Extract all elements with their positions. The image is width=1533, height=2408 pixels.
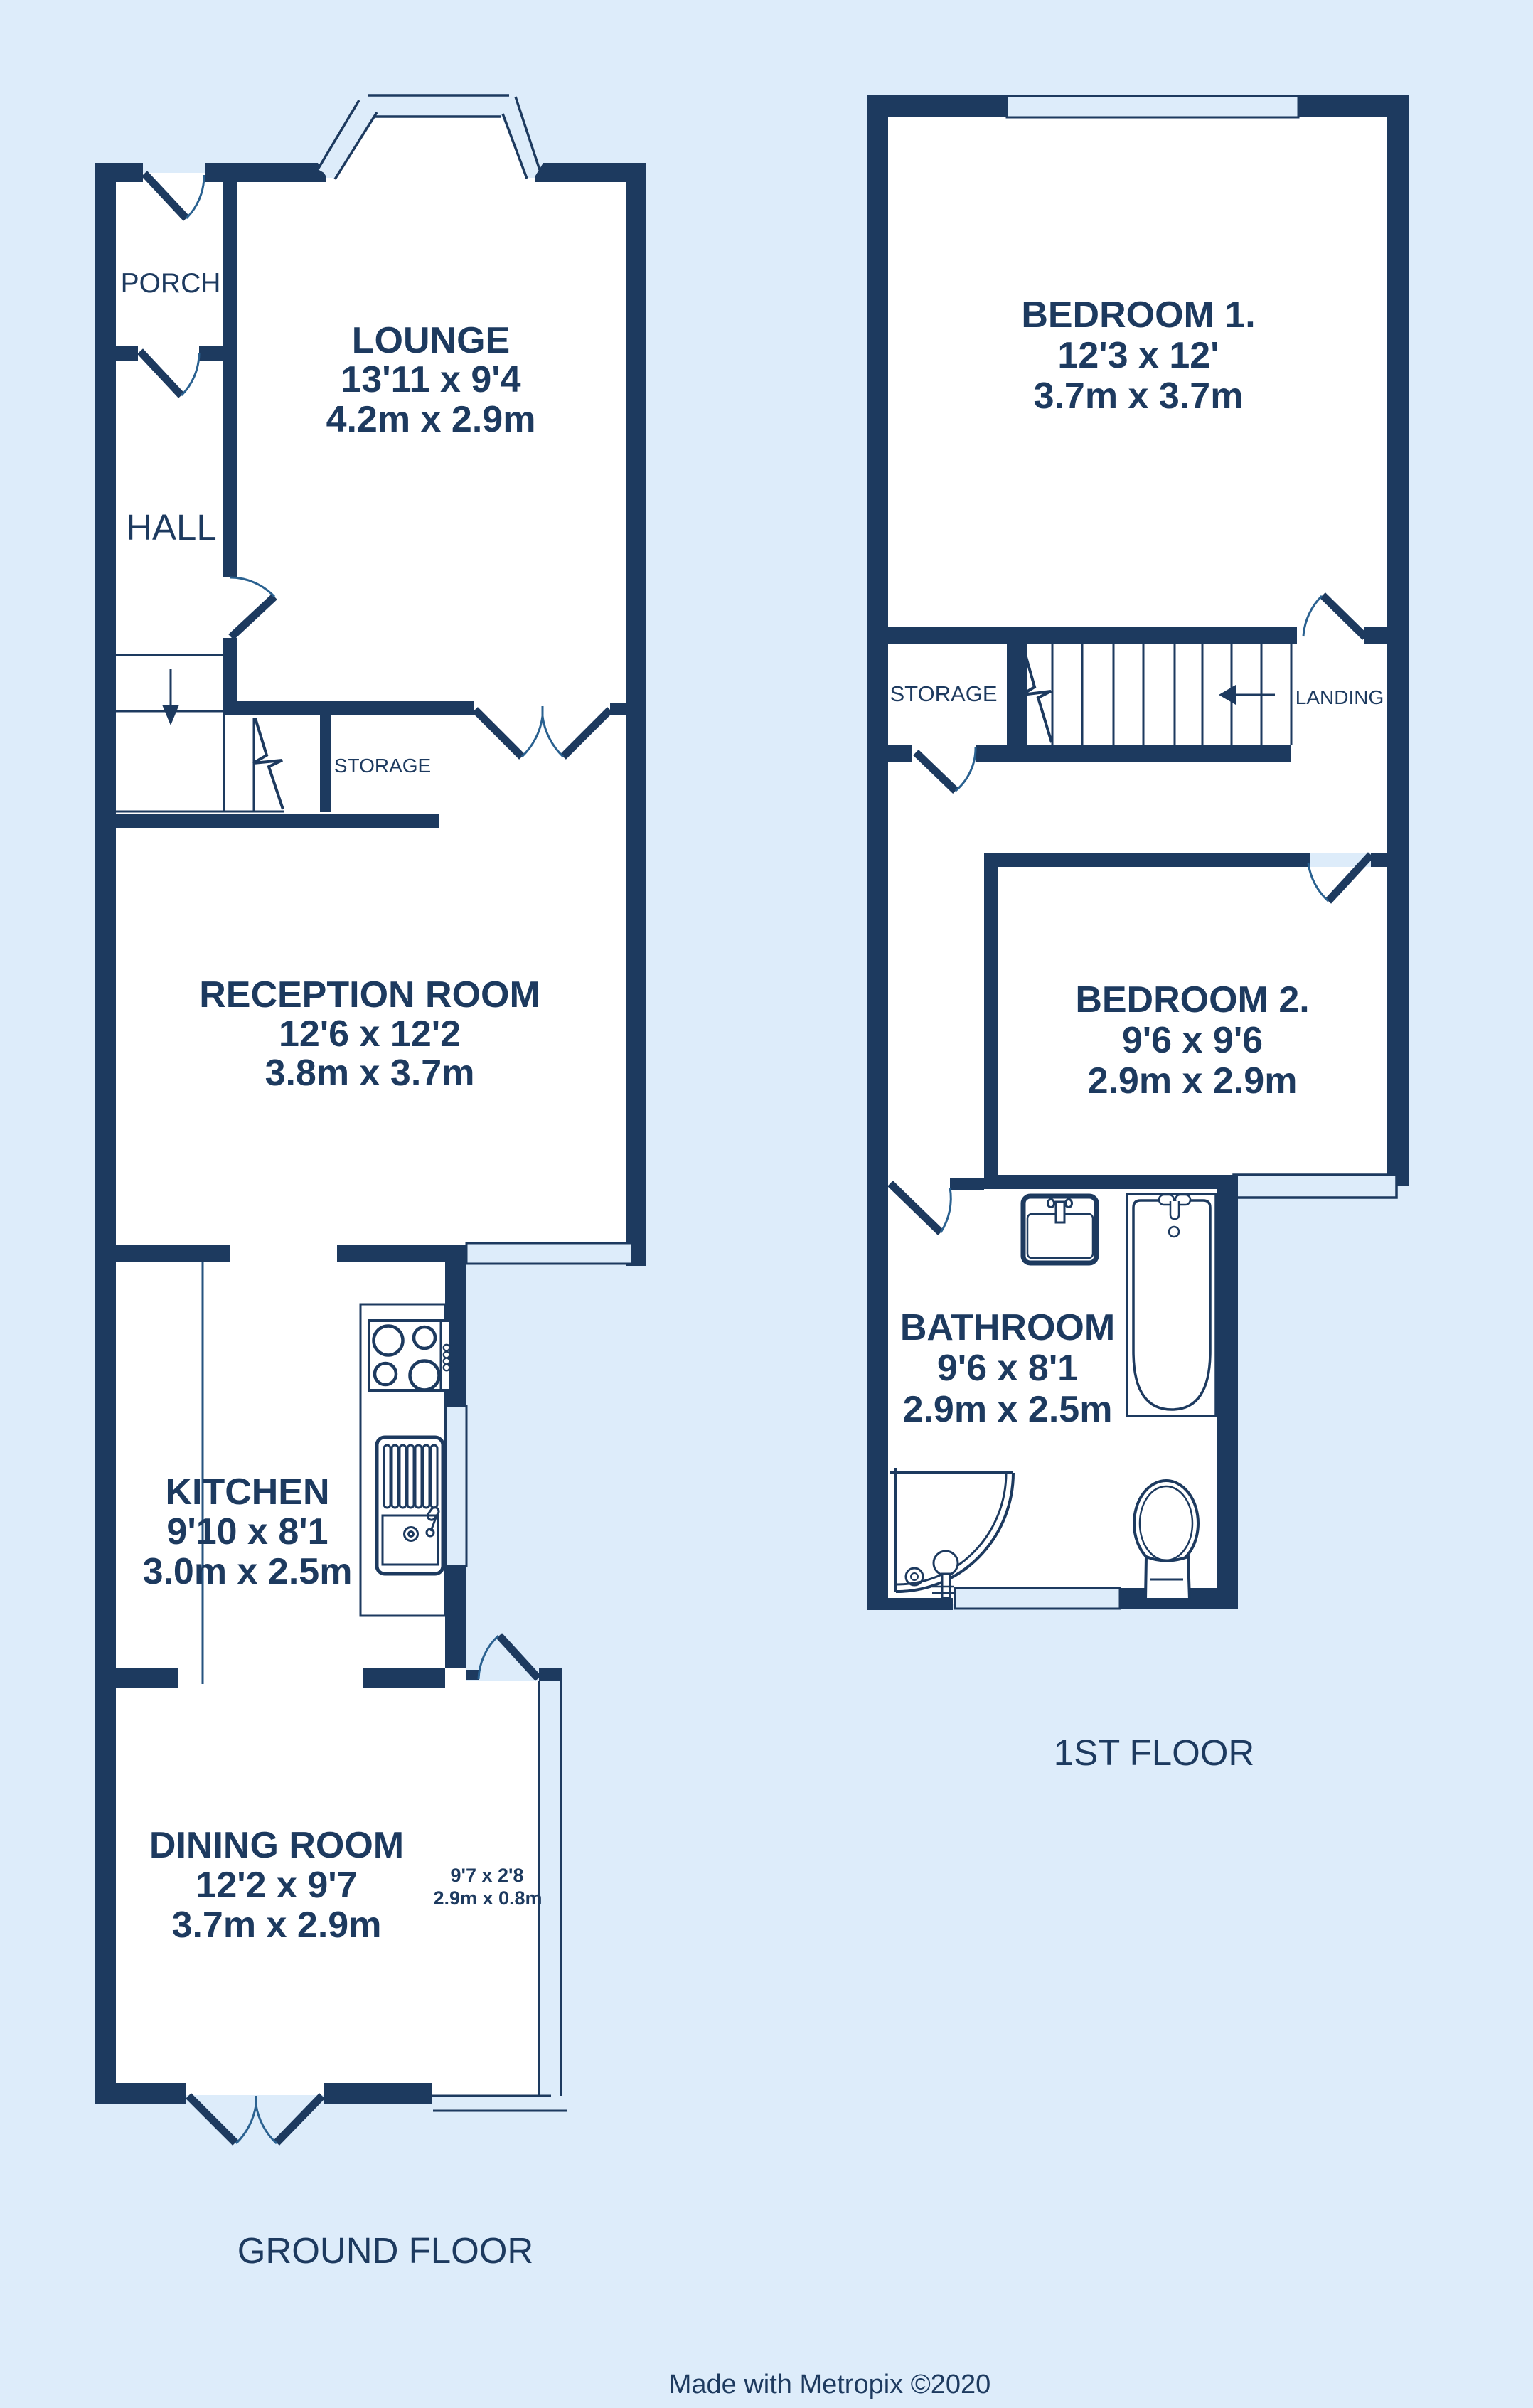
- svg-text:9'6 x 9'6: 9'6 x 9'6: [1122, 1020, 1263, 1061]
- svg-text:12'2 x 9'7: 12'2 x 9'7: [196, 1865, 357, 1906]
- svg-text:KITCHEN: KITCHEN: [165, 1471, 329, 1513]
- svg-text:9'7 x 2'8: 9'7 x 2'8: [451, 1865, 524, 1886]
- svg-text:Made with Metropix ©2020: Made with Metropix ©2020: [669, 2370, 991, 2399]
- svg-text:2.9m x 2.5m: 2.9m x 2.5m: [903, 1389, 1113, 1430]
- svg-text:3.0m x 2.5m: 3.0m x 2.5m: [143, 1551, 353, 1592]
- svg-text:BATHROOM: BATHROOM: [900, 1307, 1115, 1348]
- svg-text:1ST FLOOR: 1ST FLOOR: [1054, 1732, 1254, 1773]
- svg-text:2.9m x 2.9m: 2.9m x 2.9m: [1088, 1060, 1298, 1102]
- svg-text:13'11 x 9'4: 13'11 x 9'4: [341, 359, 520, 400]
- svg-text:BEDROOM 1.: BEDROOM 1.: [1021, 294, 1255, 336]
- svg-text:3.7m x 3.7m: 3.7m x 3.7m: [1034, 375, 1244, 417]
- svg-text:2.9m x 0.8m: 2.9m x 0.8m: [433, 1887, 542, 1909]
- svg-text:LANDING: LANDING: [1296, 686, 1384, 708]
- svg-text:GROUND FLOOR: GROUND FLOOR: [237, 2230, 534, 2271]
- svg-text:BEDROOM 2.: BEDROOM 2.: [1075, 979, 1309, 1021]
- svg-text:3.8m x 3.7m: 3.8m x 3.7m: [265, 1053, 475, 1094]
- svg-text:STORAGE: STORAGE: [890, 681, 997, 706]
- svg-text:9'10 x 8'1: 9'10 x 8'1: [166, 1511, 328, 1552]
- svg-text:9'6 x 8'1: 9'6 x 8'1: [937, 1348, 1078, 1389]
- svg-text:STORAGE: STORAGE: [334, 755, 431, 777]
- svg-text:LOUNGE: LOUNGE: [352, 320, 510, 361]
- svg-text:3.7m x 2.9m: 3.7m x 2.9m: [172, 1904, 382, 1946]
- svg-text:DINING ROOM: DINING ROOM: [149, 1825, 404, 1866]
- svg-text:4.2m x 2.9m: 4.2m x 2.9m: [326, 399, 536, 440]
- svg-text:PORCH: PORCH: [121, 268, 221, 299]
- svg-text:HALL: HALL: [126, 507, 217, 548]
- svg-text:12'6 x 12'2: 12'6 x 12'2: [279, 1013, 461, 1055]
- svg-text:RECEPTION ROOM: RECEPTION ROOM: [199, 974, 540, 1016]
- svg-text:12'3 x 12': 12'3 x 12': [1057, 335, 1219, 376]
